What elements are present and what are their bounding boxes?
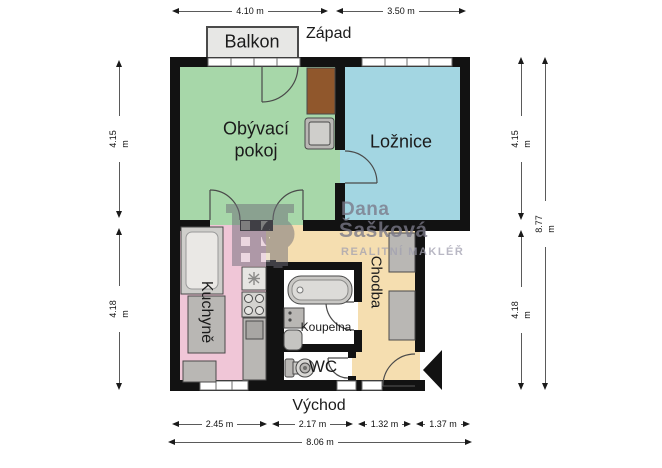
stove-symbol xyxy=(242,292,266,317)
kitchen-cabinet-symbol xyxy=(183,361,216,382)
watermark-name-line2: Šašková xyxy=(339,219,428,243)
hall-label: Chodba xyxy=(368,256,385,309)
dim-bottom-2: 2.17 m xyxy=(272,418,353,430)
bedroom-label: Ložnice xyxy=(370,132,432,153)
window-wc xyxy=(337,381,356,390)
washer-symbol xyxy=(284,330,302,350)
dim-left-2: 4.18 m xyxy=(112,228,126,390)
kitchen-label: Kuchyně xyxy=(197,281,215,343)
entrance-arrow-icon xyxy=(423,350,442,390)
hall-wardrobe-symbol xyxy=(389,291,415,340)
dim-bottom-4: 1.37 m xyxy=(416,418,470,430)
compass-west-label: Západ xyxy=(306,25,351,43)
watermark-name-line1: Dana xyxy=(341,199,389,221)
dim-bottom-total: 8.06 m xyxy=(168,436,472,448)
watermark-subtitle: REALITNÍ MAKLÉŘ xyxy=(341,246,464,258)
window-hall xyxy=(362,381,382,390)
armchair-symbol xyxy=(305,118,334,149)
dim-bottom-1: 2.45 m xyxy=(172,418,267,430)
window-living xyxy=(208,58,300,66)
dim-top-2: 3.50 m xyxy=(336,5,466,17)
dim-top-1: 4.10 m xyxy=(172,5,328,17)
wc-label: WC xyxy=(309,357,337,377)
dim-right-2: 4.18 m xyxy=(514,230,528,390)
balcony-label: Balkon xyxy=(224,32,279,53)
living-room-label: Obývací pokoj xyxy=(208,118,304,161)
dim-bottom-3: 1.32 m xyxy=(358,418,411,430)
floor-plan: Balkon Západ Obývací pokoj Ložnice Kuchy… xyxy=(0,0,662,468)
window-bedroom xyxy=(362,58,452,66)
wardrobe-symbol xyxy=(307,68,335,114)
fridge-symbol xyxy=(242,267,266,290)
dim-right-total: 8.77 m xyxy=(538,57,552,390)
dim-left-1: 4.15 m xyxy=(112,60,126,218)
compass-east-label: Východ xyxy=(292,397,345,415)
dim-right-1: 4.15 m xyxy=(514,57,528,220)
bathtub-symbol xyxy=(288,276,352,304)
bathroom-label: Koupelna xyxy=(301,320,352,334)
building-with-magnifier-icon xyxy=(226,204,294,268)
kitchen-sink-counter-symbol xyxy=(243,318,266,380)
